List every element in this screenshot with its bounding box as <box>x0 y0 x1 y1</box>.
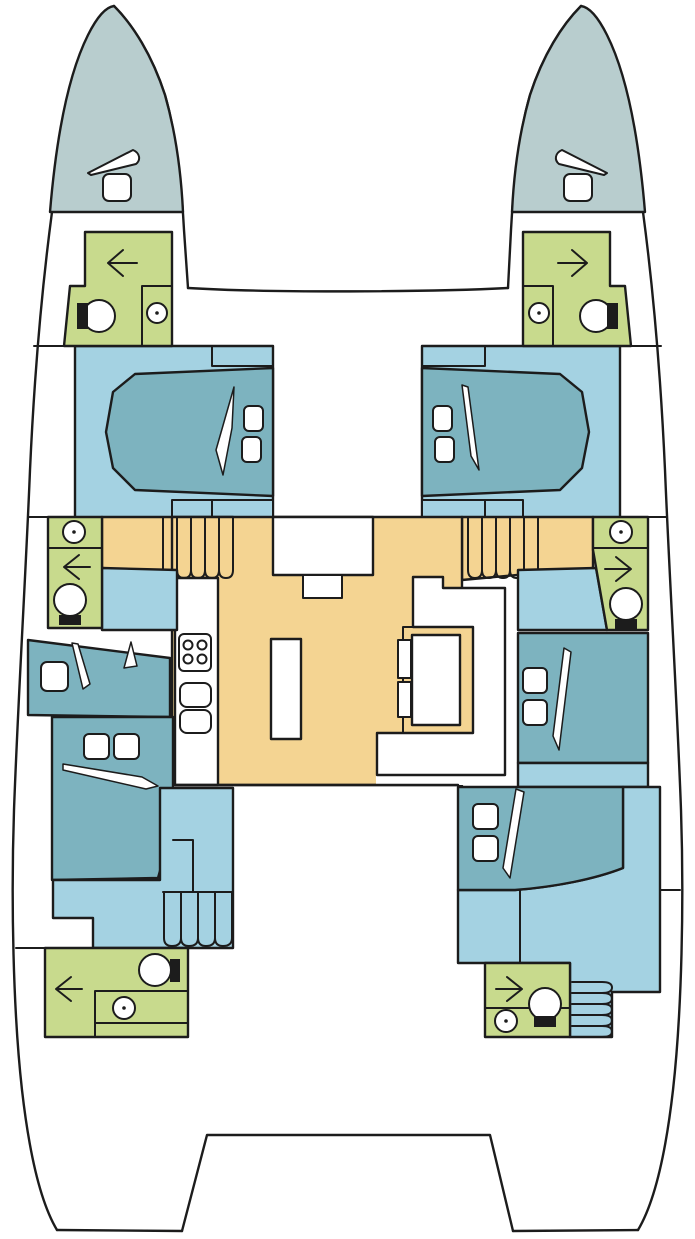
stbd-mid-cabin <box>518 633 648 787</box>
galley-sink-icon <box>180 710 211 733</box>
salon-door-step <box>303 575 342 598</box>
stbd-deck-hatch-icon <box>564 174 592 201</box>
port-forward-bed <box>106 368 273 496</box>
stbd-forward-toilet-tank <box>607 303 618 329</box>
stbd-aft-toilet-icon <box>529 988 561 1020</box>
stbd-mid-basin-drain <box>619 530 623 534</box>
stove-burner <box>184 641 193 650</box>
stbd-forward-basin-drain <box>537 311 541 315</box>
stbd-mid-toilet-icon <box>610 588 642 620</box>
stbd-mid-toilet-tank <box>615 619 637 629</box>
port-bow-deck <box>50 6 183 212</box>
dinette-table <box>412 635 460 725</box>
stove-icon <box>179 634 211 671</box>
stbd-forward-head <box>523 232 631 346</box>
stbd-corridor <box>518 568 607 630</box>
stbd-aft-head <box>485 963 570 1037</box>
port-forward-toilet-tank <box>77 303 88 329</box>
port-aft-toilet-icon <box>139 954 171 986</box>
port-double-berth <box>52 717 173 880</box>
galley-island <box>271 639 301 739</box>
dinette-mask <box>376 775 464 785</box>
port-forward-berth <box>106 368 273 496</box>
aft-platform-outline <box>182 1135 513 1231</box>
stove-burner <box>184 655 193 664</box>
salon-forward-door <box>273 517 373 575</box>
stove-burner <box>198 655 207 664</box>
stbd-salon-front-shelf <box>422 500 523 518</box>
forward-crossbeam <box>188 288 508 291</box>
pillow <box>433 406 452 431</box>
pillow <box>473 836 498 861</box>
port-stern-edge <box>57 1230 182 1231</box>
floor-plan-svg: Top-down interior layout plan of a four-… <box>0 0 695 1239</box>
pillow <box>523 668 547 693</box>
port-aft-toilet-tank <box>170 959 180 982</box>
stbd-mid-berth <box>518 633 648 763</box>
port-mid-toilet-icon <box>54 584 86 616</box>
stbd-forward-berth <box>422 368 589 496</box>
port-aft-basin-drain <box>122 1006 126 1010</box>
pillow <box>473 804 498 829</box>
stbd-stern-edge <box>513 1230 638 1231</box>
galley-counter <box>175 578 218 785</box>
stbd-aft-basin-drain <box>504 1019 508 1023</box>
pillow <box>435 437 454 462</box>
pillow <box>523 700 547 725</box>
pillow <box>41 662 68 691</box>
stbd-mid-cabin-sole <box>518 763 648 787</box>
port-mid-head <box>48 517 102 628</box>
stove-burner <box>198 641 207 650</box>
pillow <box>244 406 263 431</box>
port-salon-front-shelf <box>172 500 273 518</box>
port-corridor <box>102 568 177 630</box>
stbd-forward-bed <box>422 368 589 496</box>
port-forward-basin-drain <box>155 311 159 315</box>
pillow <box>84 734 109 759</box>
stbd-bow-deck <box>512 6 645 212</box>
port-forward-head <box>64 232 172 346</box>
port-aft-head <box>45 948 188 1037</box>
pillow <box>242 437 261 462</box>
port-mid-cabin <box>28 640 173 880</box>
catamaran-floor-plan: Top-down interior layout plan of a four-… <box>0 0 695 1239</box>
port-deck-hatch-icon <box>103 174 131 201</box>
port-mid-basin-drain <box>72 530 76 534</box>
dinette-seat <box>398 682 411 717</box>
dinette-seat <box>398 640 411 678</box>
stbd-aft-toilet-tank <box>534 1016 556 1027</box>
port-mid-toilet-tank <box>59 615 81 625</box>
galley-sink-icon <box>180 683 211 707</box>
pillow <box>114 734 139 759</box>
